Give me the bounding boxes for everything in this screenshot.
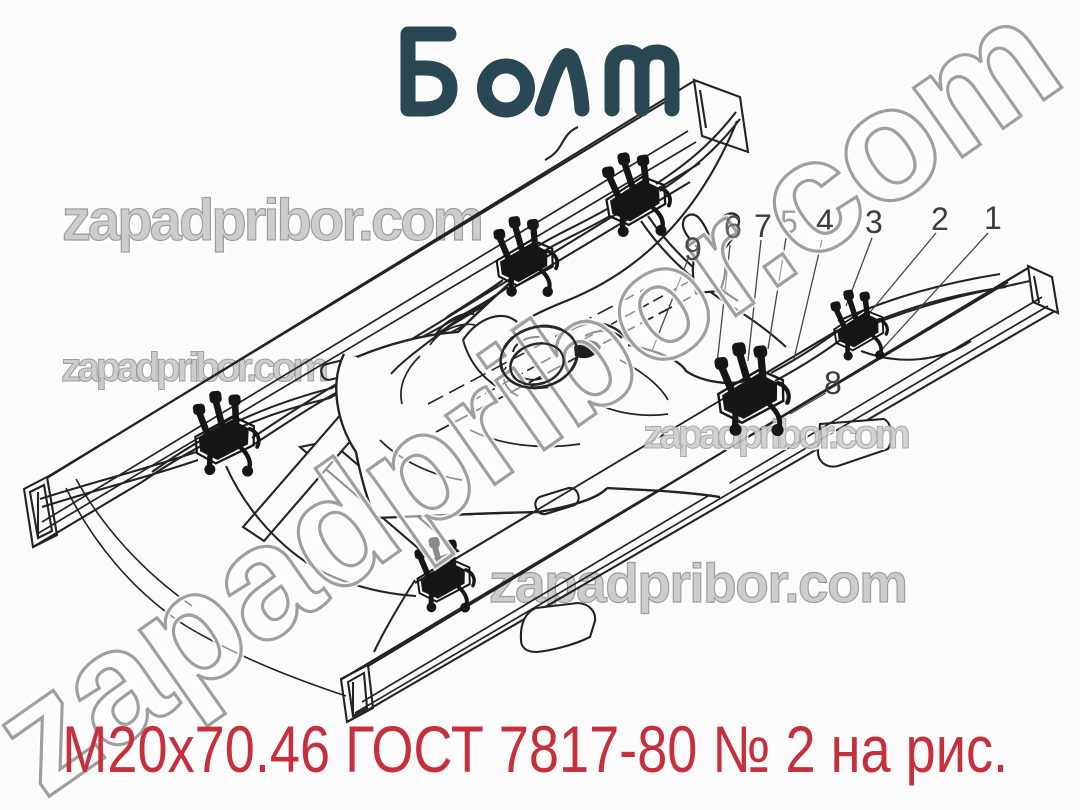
svg-text:1: 1	[984, 200, 1002, 236]
svg-text:zapadpribor.com: zapadpribor.com	[62, 188, 481, 253]
svg-text:9: 9	[684, 231, 702, 267]
svg-text:zapadpribor.com: zapadpribor.com	[489, 552, 907, 614]
svg-text:8: 8	[824, 365, 842, 401]
svg-text:М20х70.46 ГОСТ 7817-80 № 2 на: М20х70.46 ГОСТ 7817-80 № 2 на рис.	[62, 712, 1008, 786]
svg-text:6: 6	[724, 209, 742, 245]
svg-text:zapadpribor.com: zapadpribor.com	[61, 344, 326, 390]
